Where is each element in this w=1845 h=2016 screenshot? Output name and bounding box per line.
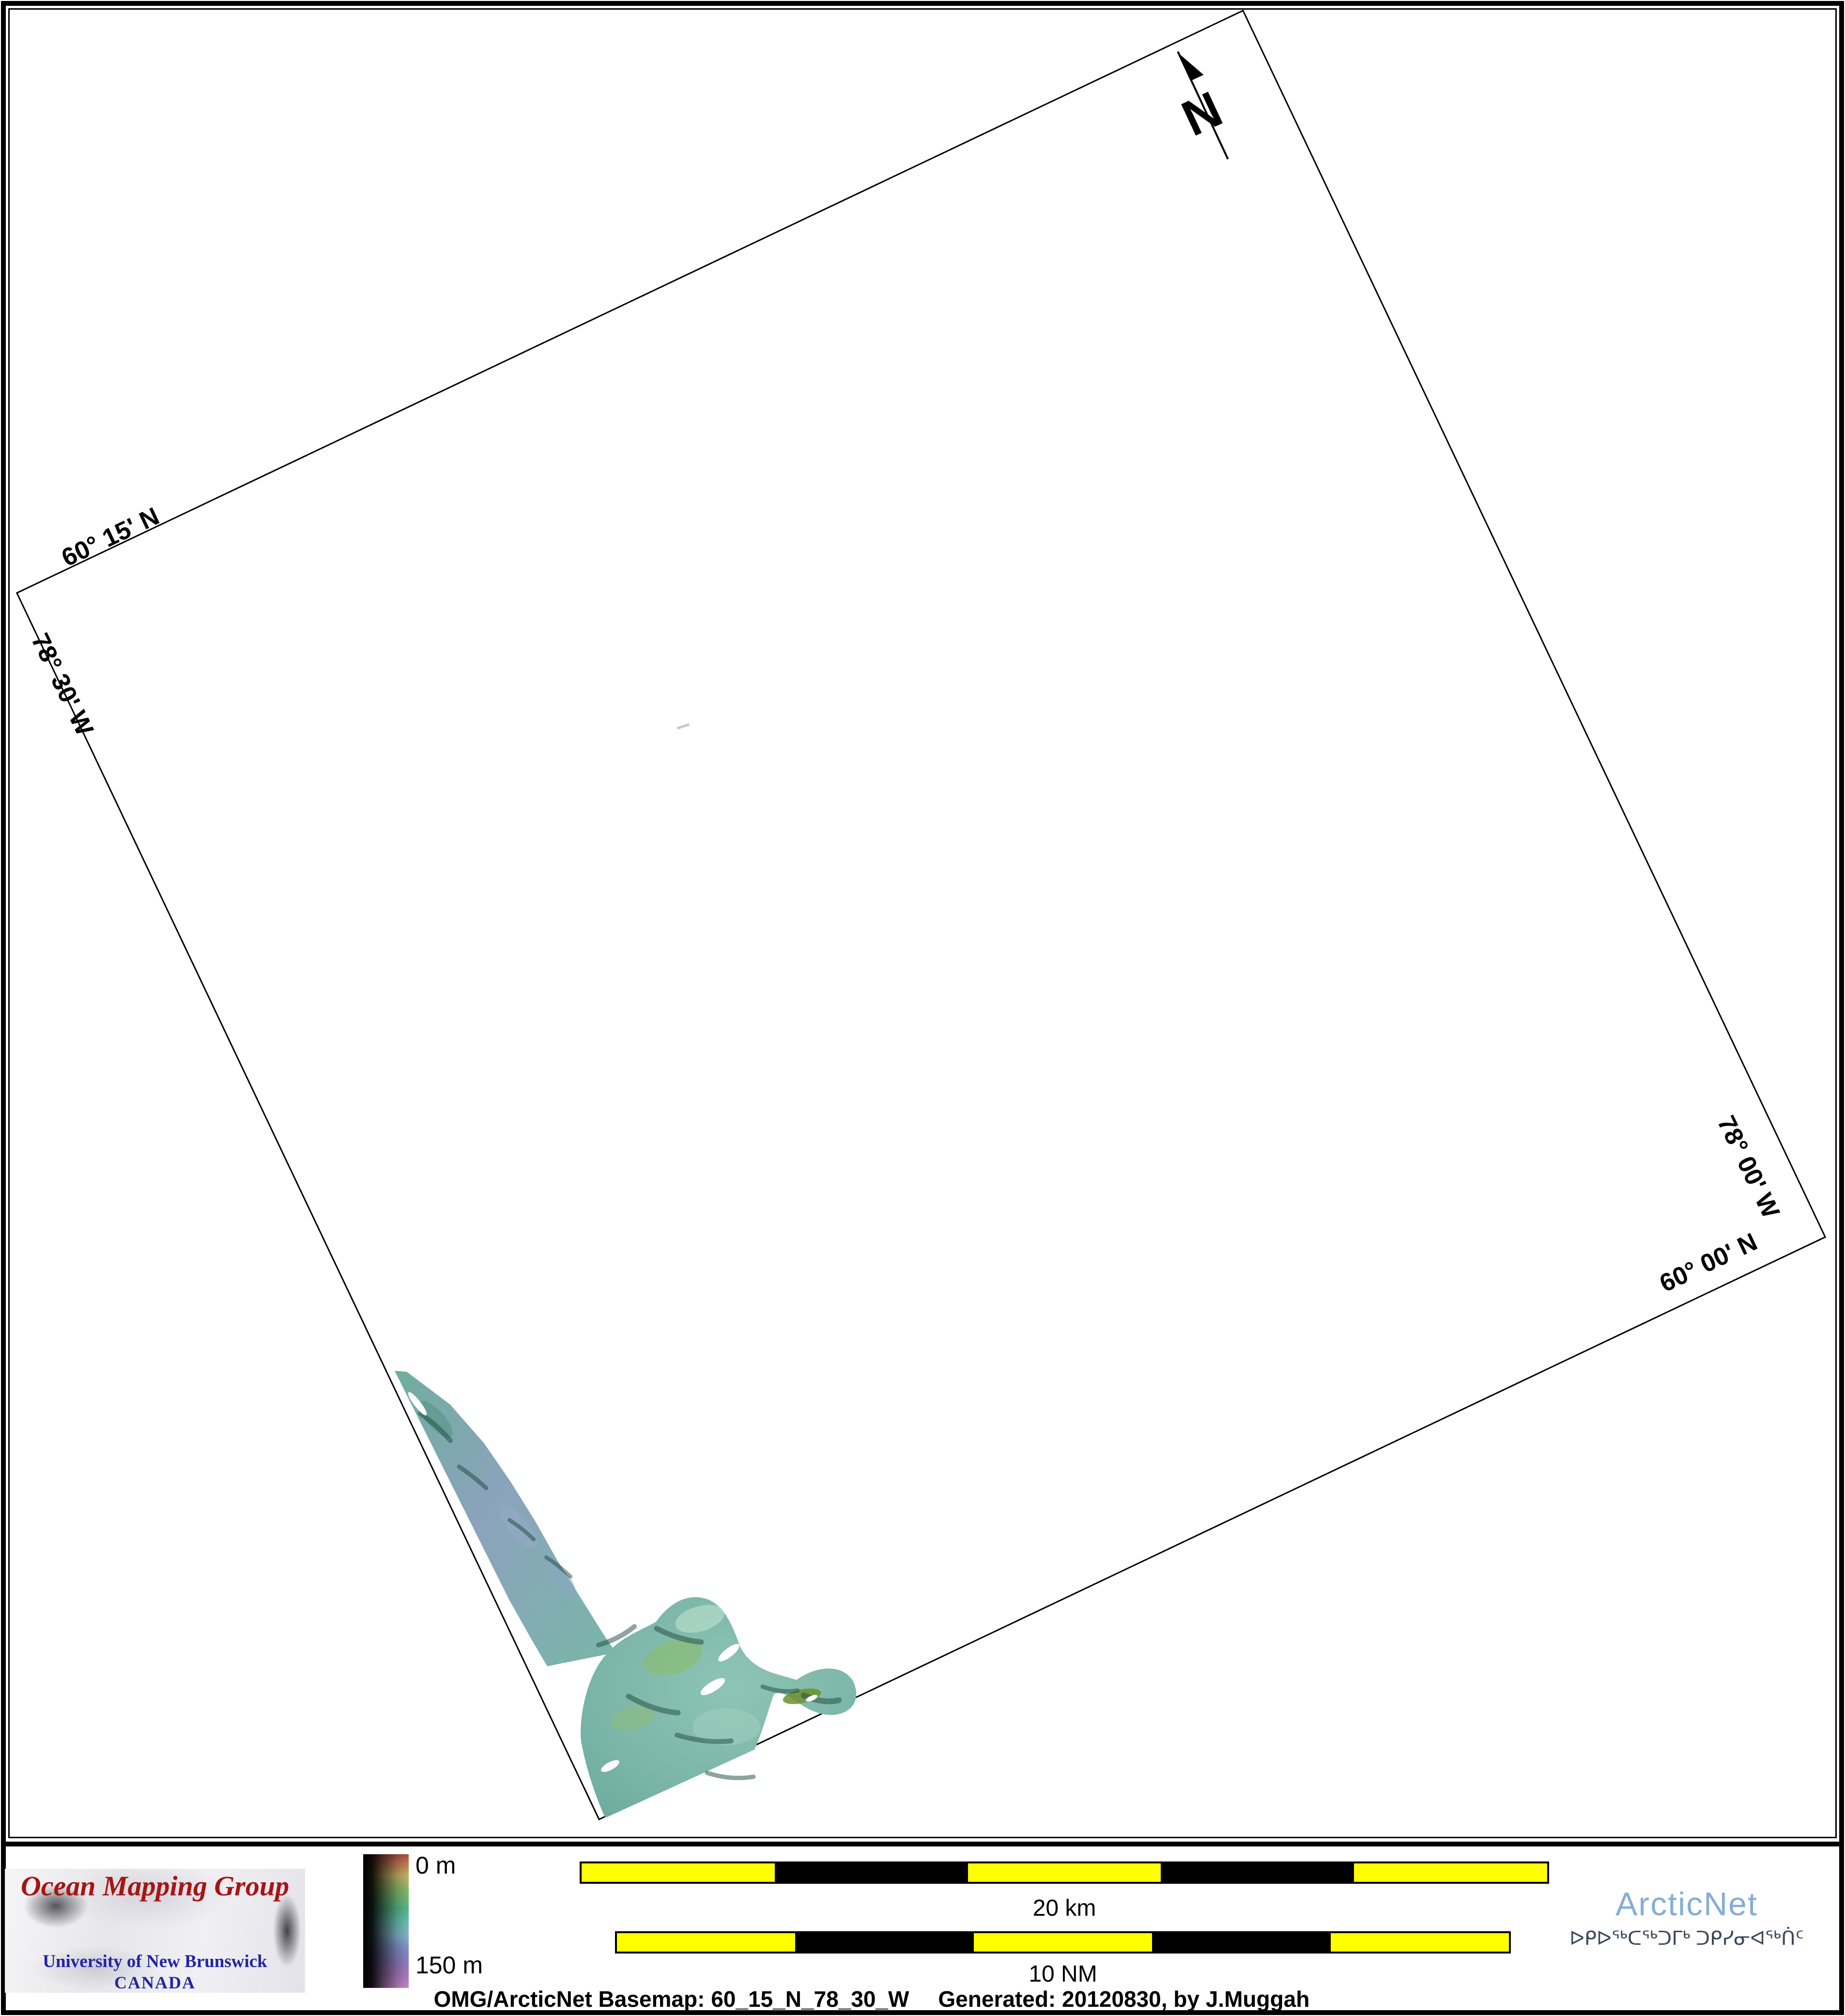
scalebar-segment bbox=[1161, 1863, 1354, 1882]
omg-logo: Ocean Mapping Group University of New Br… bbox=[5, 1869, 305, 1993]
arcticnet-syllabics-tagline: ᐅᑭᐅᖅᑕᖅᑐᒥᒃ ᑐᑭᓯᓂᐊᖅᑏᑦ bbox=[1530, 1927, 1843, 1950]
scalebar-segment bbox=[1354, 1863, 1547, 1882]
scalebar-nm-label: 10 NM bbox=[615, 1961, 1511, 1987]
scalebar-segment bbox=[1331, 1933, 1509, 1952]
scalebar-segment bbox=[617, 1933, 795, 1952]
depth-label-max: 150 m bbox=[415, 1951, 483, 1979]
scalebar-segment bbox=[775, 1863, 968, 1882]
scalebar-segment bbox=[1152, 1933, 1330, 1952]
depth-colorbar bbox=[363, 1854, 409, 1988]
bathymetry-swath bbox=[291, 1259, 896, 1865]
scalebar-segment bbox=[795, 1933, 973, 1952]
map-caption: OMG/ArcticNet Basemap: 60_15_N_78_30_WGe… bbox=[315, 1986, 1429, 2012]
omg-logo-university: University of New Brunswick bbox=[5, 1951, 305, 1972]
caption-generated: Generated: 20120830, by J.Muggah bbox=[938, 1986, 1309, 2012]
scalebar-segment bbox=[582, 1863, 775, 1882]
north-arrow-label: N bbox=[1175, 83, 1229, 144]
scalebar-segment bbox=[968, 1863, 1161, 1882]
scalebar-km-label: 20 km bbox=[580, 1895, 1549, 1922]
omg-logo-country: CANADA bbox=[5, 1972, 305, 1993]
arcticnet-logo: ArcticNet ᐅᑭᐅᖅᑕᖅᑐᒥᒃ ᑐᑭᓯᓂᐊᖅᑏᑦ bbox=[1530, 1887, 1843, 1950]
swath-blob bbox=[581, 1597, 856, 1818]
depth-label-min: 0 m bbox=[415, 1851, 456, 1879]
arcticnet-wordmark: ArcticNet bbox=[1530, 1887, 1843, 1922]
basemap-sheet: 60° 15' N 78° 30' W 78° 00' W 60° 00' N … bbox=[0, 0, 1845, 2016]
scalebar-segment bbox=[974, 1933, 1152, 1952]
omg-logo-title: Ocean Mapping Group bbox=[5, 1870, 305, 1902]
scalebar-km bbox=[580, 1861, 1549, 1884]
scalebar-nm bbox=[615, 1931, 1511, 1954]
caption-basemap: OMG/ArcticNet Basemap: 60_15_N_78_30_W bbox=[434, 1986, 909, 2012]
